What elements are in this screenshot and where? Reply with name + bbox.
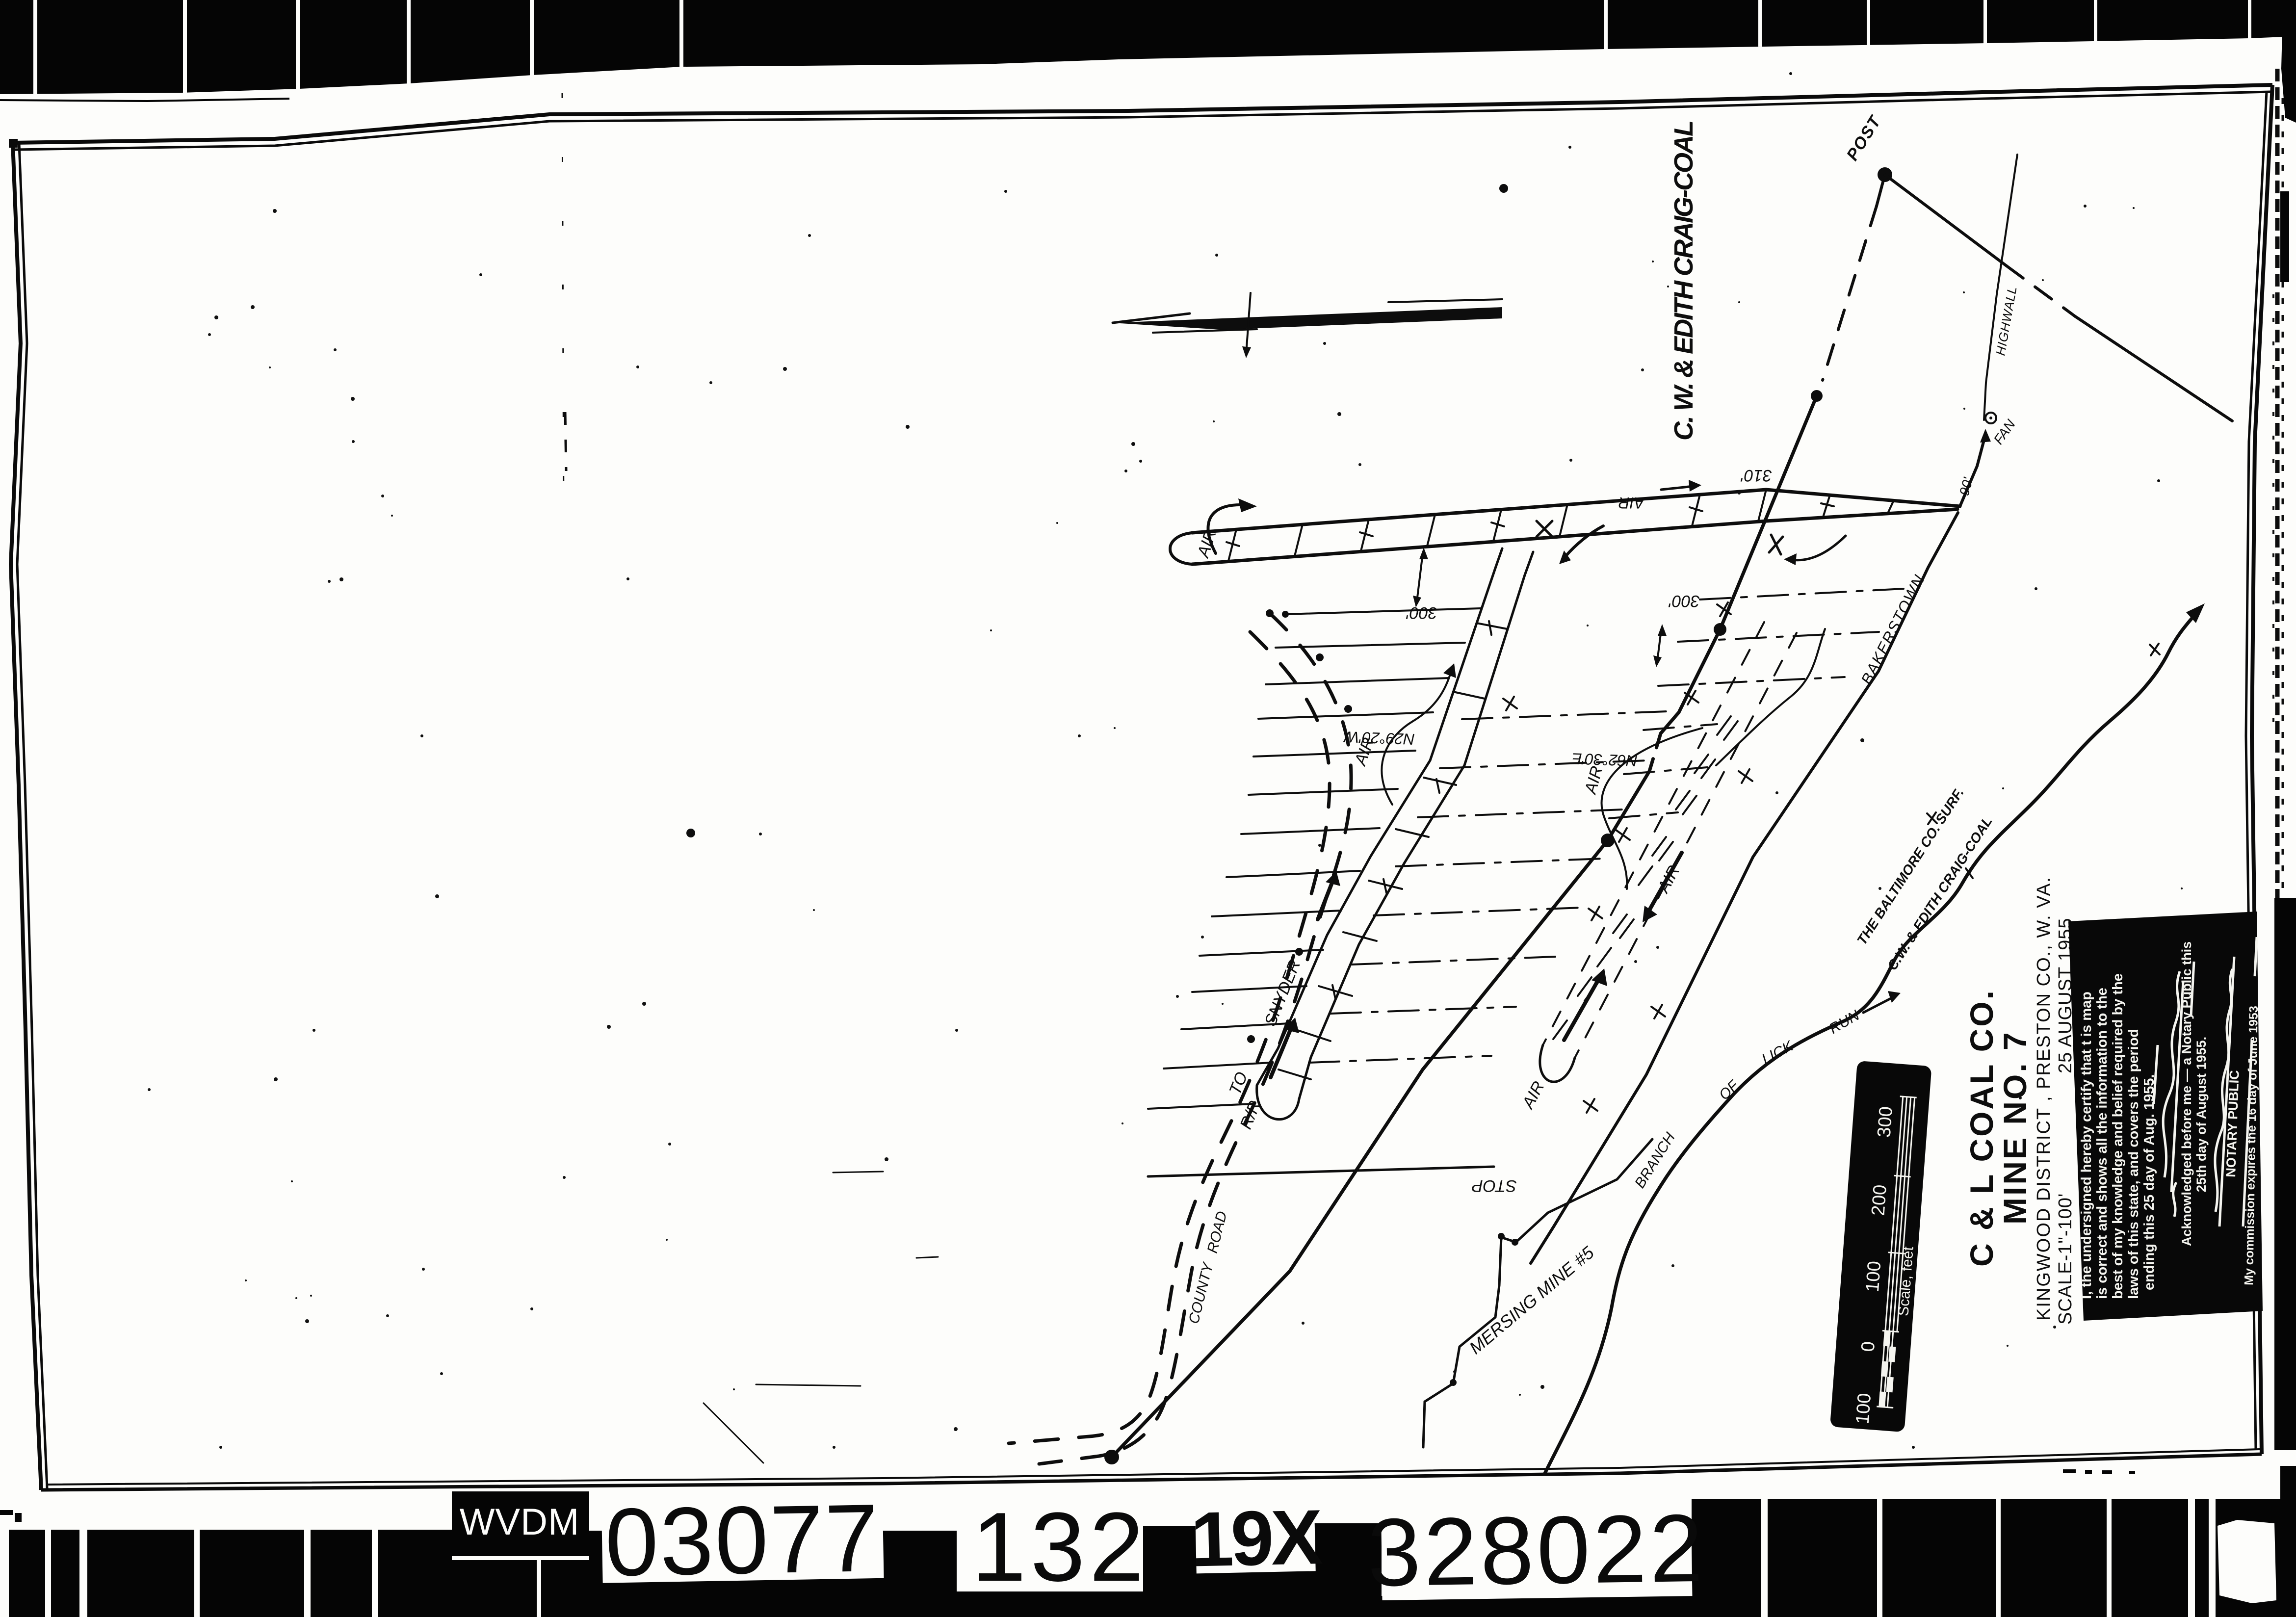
svg-text:300': 300' xyxy=(1668,592,1700,610)
svg-text:100: 100 xyxy=(1852,1392,1876,1425)
svg-text:best of my knowledge and belie: best of my knowledge and belief required… xyxy=(2110,973,2126,1299)
svg-text:ending this 25 day of Aug. 195: ending this 25 day of Aug. 1955. xyxy=(2141,1074,2157,1290)
svg-text:I, the undersigned hereby cert: I, the undersigned hereby certify that t… xyxy=(2079,991,2094,1299)
svg-text:C. W. & EDITH CRAIG-COAL: C. W. & EDITH CRAIG-COAL xyxy=(1669,122,1698,441)
svg-text:laws of this state, and covers: laws of this state, and covers the perio… xyxy=(2126,1029,2141,1299)
svg-text:N62°30'E: N62°30'E xyxy=(1571,750,1638,770)
svg-text:300: 300 xyxy=(1874,1106,1897,1138)
svg-text:310': 310' xyxy=(1740,466,1772,485)
svg-text:25th day of August 1955.: 25th day of August 1955. xyxy=(2194,1037,2209,1192)
svg-text:N29°20'W: N29°20'W xyxy=(1343,728,1415,748)
svg-text:328022: 328022 xyxy=(1367,1494,1707,1607)
svg-text:1: 1 xyxy=(971,1492,1026,1602)
svg-text:200: 200 xyxy=(1868,1184,1891,1216)
svg-text:WVDM: WVDM xyxy=(460,1501,580,1543)
svg-text:C & L COAL CO.: C & L COAL CO. xyxy=(1963,989,2000,1267)
svg-text:STOP: STOP xyxy=(1472,1176,1517,1195)
svg-text:KINGWOOD DISTRICT , PRESTON CO: KINGWOOD DISTRICT , PRESTON CO., W. VA. xyxy=(2034,876,2054,1321)
svg-text:300': 300' xyxy=(1406,603,1437,622)
svg-text:is correct and shows all the i: is correct and shows all the information… xyxy=(2094,988,2110,1299)
svg-text:3: 3 xyxy=(1030,1492,1085,1602)
svg-text:2: 2 xyxy=(1089,1492,1144,1602)
svg-text:0: 0 xyxy=(1858,1341,1879,1353)
svg-text:SCALE-1"-100': SCALE-1"-100' xyxy=(2055,1193,2076,1325)
svg-text:19X: 19X xyxy=(1190,1494,1323,1583)
svg-text:MINE NO. 7: MINE NO. 7 xyxy=(1997,1030,2033,1225)
svg-text:03077: 03077 xyxy=(604,1484,881,1596)
svg-text:100: 100 xyxy=(1862,1260,1885,1293)
svg-text:AIR: AIR xyxy=(1618,494,1645,512)
